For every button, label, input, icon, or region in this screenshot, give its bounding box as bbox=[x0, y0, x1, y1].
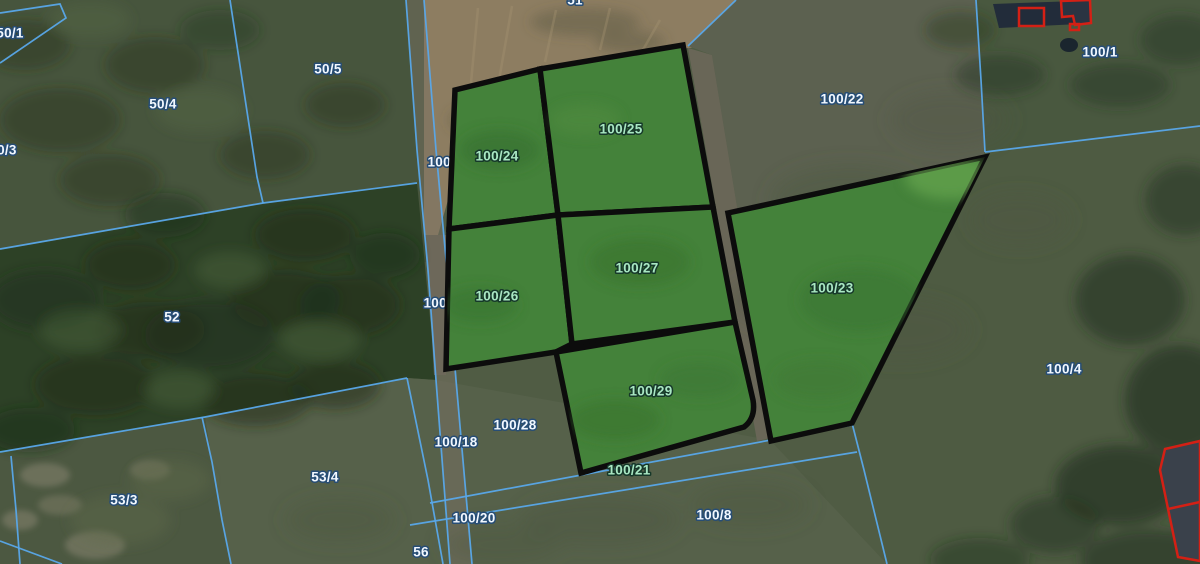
parcel-label-100-20: 100/20 bbox=[452, 511, 495, 526]
parcel-label-100-21: 100/21 bbox=[607, 463, 650, 478]
parcel-label-100-4: 100/4 bbox=[1046, 362, 1081, 377]
parcel-label-100-18: 100/18 bbox=[434, 435, 477, 450]
parcel-label-100-8: 100/8 bbox=[696, 508, 731, 523]
parcel-label-100-22: 100/22 bbox=[820, 92, 863, 107]
parcel-label-100-27: 100/27 bbox=[615, 261, 658, 276]
parcel-label-100-25: 100/25 bbox=[599, 122, 642, 137]
parcel-label-50-1: 50/1 bbox=[0, 26, 24, 41]
parcel-label-100-1: 100/1 bbox=[1082, 45, 1117, 60]
pond bbox=[1060, 38, 1078, 52]
cadastral-map-canvas[interactable]: 100/14100/16 5150/150/450/550/352100/221… bbox=[0, 0, 1200, 564]
parcel-label-51: 51 bbox=[567, 0, 583, 8]
map-viewport[interactable]: 100/14100/16 5150/150/450/550/352100/221… bbox=[0, 0, 1200, 564]
parcel-label-50-3: 50/3 bbox=[0, 143, 17, 158]
parcel-label-100-29: 100/29 bbox=[629, 384, 672, 399]
parcel-label-100-24: 100/24 bbox=[475, 149, 518, 164]
parcel-label-100-23: 100/23 bbox=[810, 281, 853, 296]
parcel-label-53-4: 53/4 bbox=[311, 470, 339, 485]
parcel-label-50-5: 50/5 bbox=[314, 62, 342, 77]
parcel-label-56: 56 bbox=[413, 545, 429, 560]
parcel-label-52: 52 bbox=[164, 310, 180, 325]
parcel-label-50-4: 50/4 bbox=[149, 97, 177, 112]
parcel-label-100-26: 100/26 bbox=[475, 289, 518, 304]
parcel-label-100-28: 100/28 bbox=[493, 418, 536, 433]
parcel-label-53-3: 53/3 bbox=[110, 493, 138, 508]
